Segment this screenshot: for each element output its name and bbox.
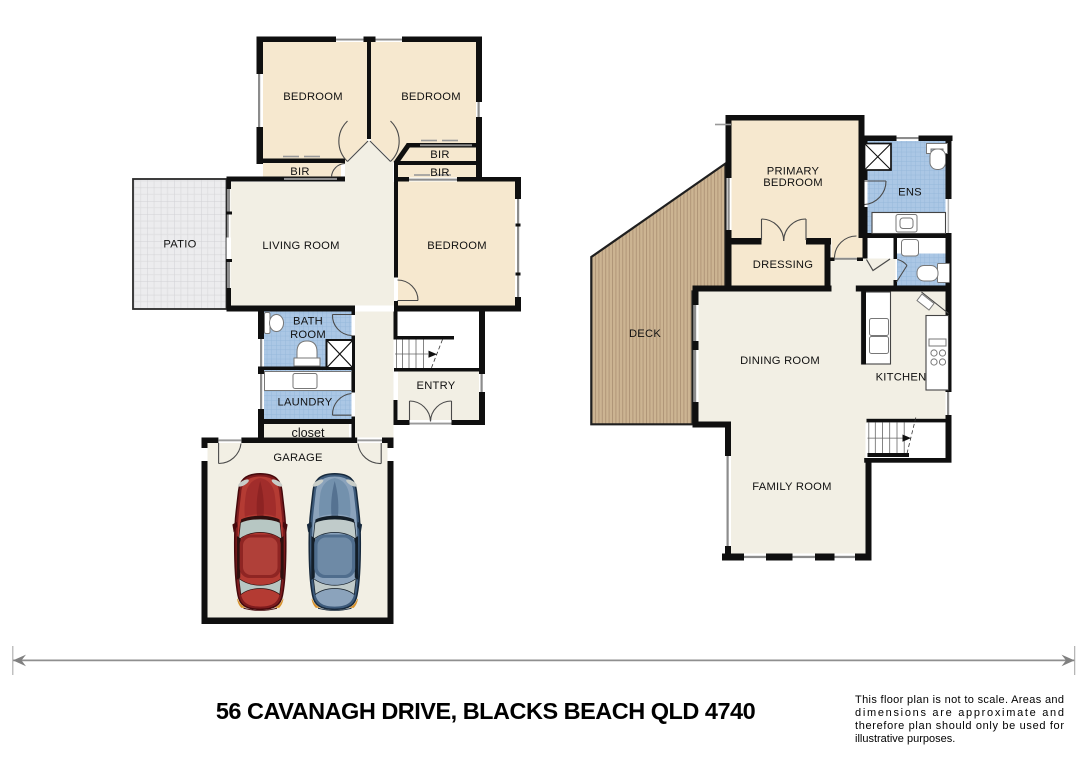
svg-text:ROOM: ROOM: [290, 329, 326, 341]
svg-text:PRIMARY: PRIMARY: [767, 166, 820, 178]
svg-text:KITCHEN: KITCHEN: [876, 372, 927, 384]
svg-text:GARAGE: GARAGE: [273, 452, 322, 464]
svg-text:illustrative purposes.: illustrative purposes.: [855, 733, 955, 745]
svg-text:closet: closet: [292, 426, 325, 440]
svg-text:BATH: BATH: [293, 316, 323, 328]
svg-text:DRESSING: DRESSING: [753, 259, 813, 271]
svg-text:BIR: BIR: [290, 166, 309, 178]
svg-text:BEDROOM: BEDROOM: [401, 91, 461, 103]
svg-text:BIR: BIR: [430, 167, 449, 179]
svg-text:BEDROOM: BEDROOM: [283, 91, 343, 103]
svg-text:PATIO: PATIO: [163, 239, 196, 251]
svg-text:BEDROOM: BEDROOM: [763, 177, 823, 189]
svg-text:DECK: DECK: [629, 328, 661, 340]
svg-text:ENS: ENS: [898, 187, 922, 199]
svg-text:56 CAVANAGH DRIVE, BLACKS BEAC: 56 CAVANAGH DRIVE, BLACKS BEACH QLD 4740: [216, 698, 756, 724]
svg-text:LAUNDRY: LAUNDRY: [277, 397, 332, 409]
svg-text:therefore plan should only be: therefore plan should only be used for: [855, 720, 1064, 732]
svg-text:LIVING ROOM: LIVING ROOM: [262, 240, 339, 252]
svg-text:This floor plan is not to scal: This floor plan is not to scale. Areas a…: [855, 694, 1064, 706]
svg-text:DINING ROOM: DINING ROOM: [740, 355, 820, 367]
svg-text:BIR: BIR: [430, 149, 449, 161]
svg-text:FAMILY ROOM: FAMILY ROOM: [752, 481, 831, 493]
svg-text:dimensions are approximate and: dimensions are approximate and: [855, 707, 1064, 719]
svg-text:ENTRY: ENTRY: [417, 380, 456, 392]
svg-text:BEDROOM: BEDROOM: [427, 240, 487, 252]
